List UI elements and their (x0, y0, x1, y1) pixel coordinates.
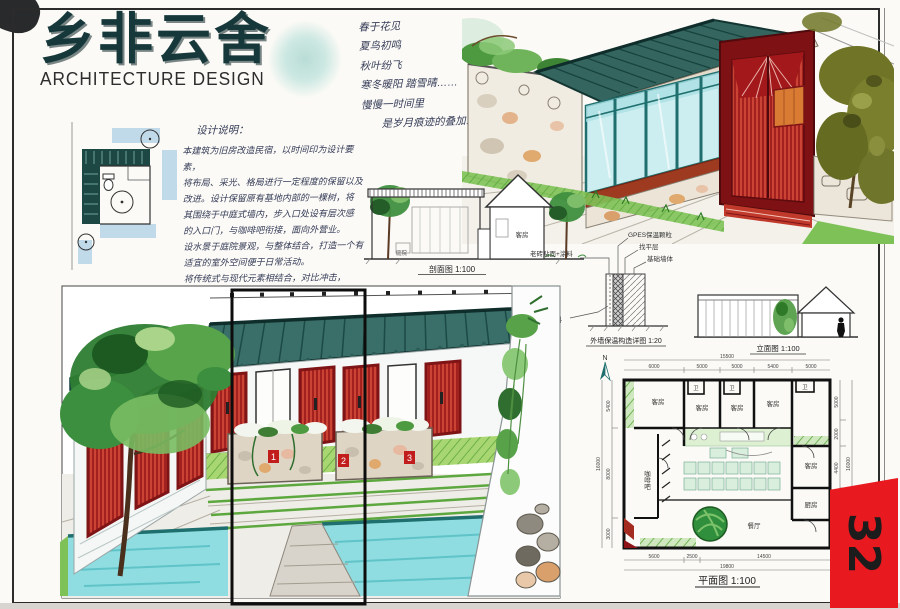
title-block: 乡非云舍 ARCHITECTURE DESIGN (40, 12, 300, 90)
design-notes-line: 将布局、采光、格局进行一定程度的保留以及 (183, 173, 371, 191)
red-entrance-portal (720, 30, 814, 228)
room-label-guest: 客房 (805, 461, 818, 470)
detail-caption: 外墙保温构造详图 1:20 (590, 336, 662, 345)
board-title: 乡非云舍 (40, 12, 300, 67)
toilet-icon (103, 174, 114, 191)
tag-1: 1 (271, 452, 276, 462)
detail-label-leveling: 找平层 (639, 242, 659, 251)
dim: 14500 (757, 554, 771, 560)
dim: 16000 (596, 457, 602, 471)
detail-label-insulation: GPES保温颗粒 (628, 230, 673, 239)
room-label-kitchen: 厨房 (805, 500, 818, 509)
tag-3: 3 (407, 453, 412, 463)
section-room-label: 客房 (516, 230, 529, 239)
dim: 5000 (731, 364, 742, 370)
dim: 2000 (834, 428, 840, 439)
room-label-wc: 卫 (729, 385, 735, 392)
photo-corner-shadow (0, 0, 45, 39)
plan-tree (693, 507, 727, 541)
north-arrow: N (600, 355, 610, 380)
detail-label-base-wall: 基础墙体 (647, 254, 674, 263)
room-label-guest: 客房 (696, 403, 709, 412)
dim: 19800 (720, 564, 734, 570)
design-board: 乡非云舍 ARCHITECTURE DESIGN 春于花见 夏鸟初鸣 秋叶纷飞 … (0, 0, 900, 609)
dim: 2500 (686, 554, 697, 560)
north-label: N (602, 355, 607, 362)
detail-label-finish: 老砖贴面+涂料 (530, 249, 573, 258)
dim: 5000 (805, 364, 816, 370)
room-label-wc: 卫 (802, 384, 808, 391)
room-label-cafe: 咖啡吧 (643, 469, 651, 490)
dim: 15500 (720, 354, 734, 360)
dim: 8000 (606, 468, 612, 479)
room-label-dining: 餐厅 (748, 521, 762, 530)
room-label-guest: 客房 (652, 397, 665, 406)
dim: 5000 (696, 364, 707, 370)
elevation-drawing: 立面图 1:100 (692, 275, 860, 357)
section-yard-label: 庭院 (396, 249, 408, 257)
dim: 5400 (767, 364, 778, 370)
design-notes-line: 本建筑为旧房改造民宿，以时间印为设计要素， (182, 141, 370, 175)
room-label-guest: 客房 (767, 399, 780, 408)
section-caption: 剖面图 1:100 (429, 264, 476, 274)
board-subtitle: ARCHITECTURE DESIGN (40, 69, 290, 90)
dim: 16000 (846, 457, 852, 471)
dim: 5000 (834, 396, 840, 407)
dim: 4400 (834, 462, 840, 473)
design-notes: 设计说明： 本建筑为旧房改造民宿，以时间印为设计要素， 将布局、采光、格局进行一… (182, 120, 372, 303)
design-notes-line: 改进。设计保留原有基地内部的一棵树，将 (183, 189, 371, 207)
design-notes-line: 其围绕于中庭式墙内，步入口处设有层次感 (183, 205, 371, 223)
dim: 3000 (606, 528, 612, 539)
dim: 5400 (606, 400, 612, 411)
room-label-wc: 卫 (693, 385, 699, 392)
design-notes-line: 的入口门，与咖啡吧衔接，面向外营业。 (183, 221, 371, 239)
design-notes-heading: 设计说明： (196, 120, 370, 141)
dim: 6000 (648, 364, 659, 370)
floor-plan: N (592, 350, 868, 590)
design-notes-line: 设水景于庭院景观，与整体结合，打造一个有 (183, 237, 371, 255)
dim: 5600 (648, 554, 659, 560)
design-notes-line: 适宜的室外空间便于日常活动。 (183, 253, 371, 271)
tag-2: 2 (341, 456, 346, 466)
room-label-guest: 客房 (731, 403, 744, 412)
page-tab: 32 (830, 478, 898, 608)
plan-caption: 平面图 1:100 (698, 575, 756, 587)
page-number: 32 (838, 512, 889, 573)
courtyard-perspective: 1 2 3 (60, 284, 565, 606)
concept-sketch (70, 122, 188, 270)
